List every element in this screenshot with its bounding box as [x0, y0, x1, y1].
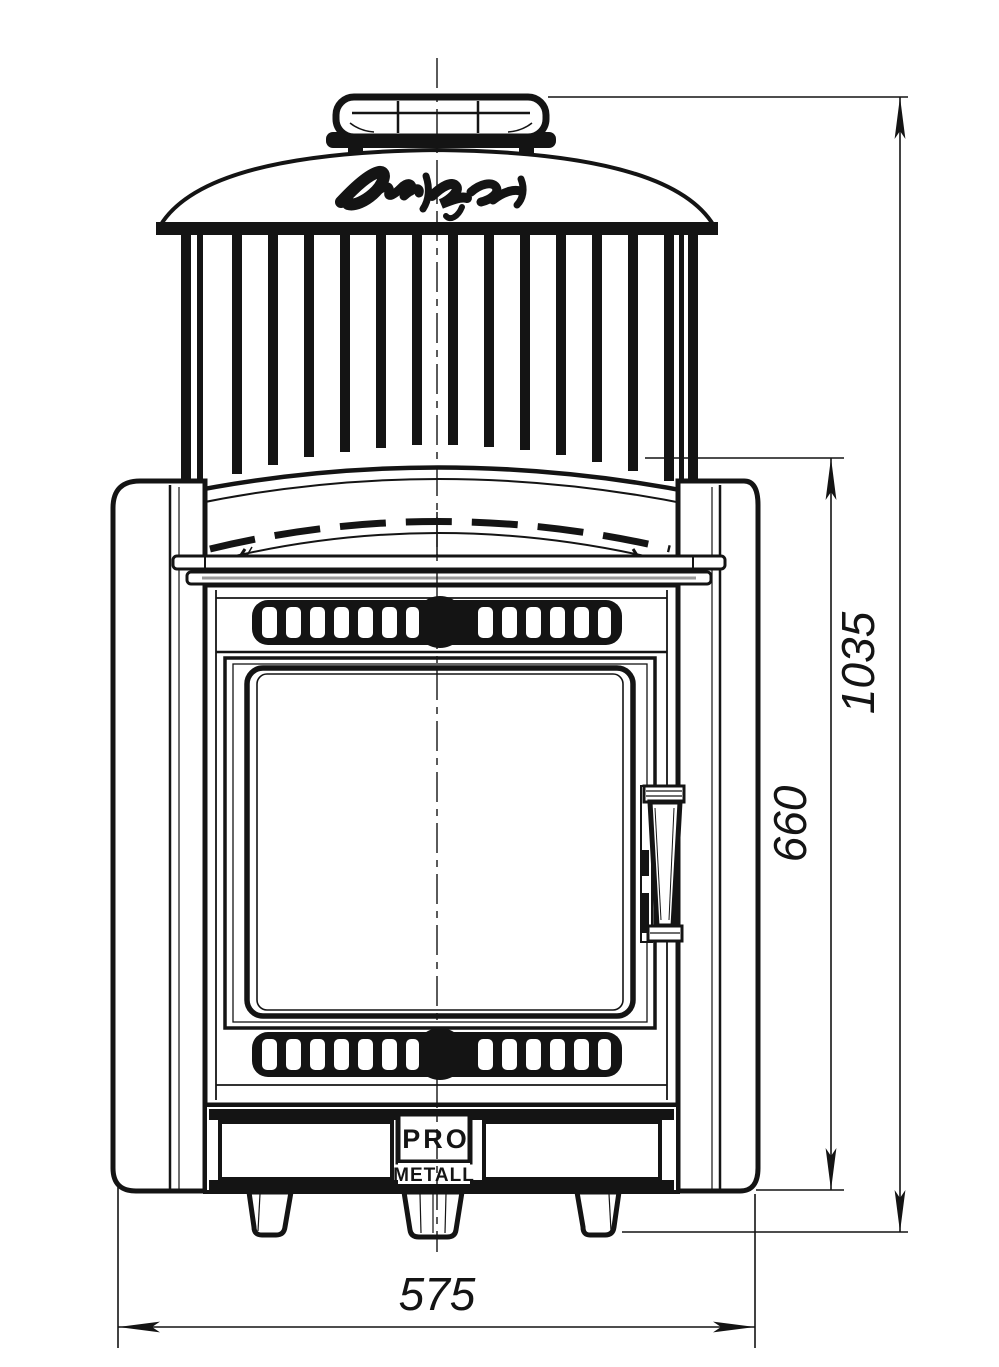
slot	[358, 607, 373, 638]
dim-overall-height-label: 1035	[832, 611, 884, 714]
slat	[592, 230, 602, 462]
grille-knob	[414, 1028, 466, 1080]
slot	[574, 1039, 589, 1070]
side-panel-left	[113, 481, 205, 1191]
leg-center	[404, 1192, 462, 1237]
script-stroke	[404, 189, 419, 196]
slot	[334, 607, 349, 638]
slat	[340, 230, 350, 452]
slat	[688, 230, 698, 490]
side-panel-right	[678, 481, 758, 1191]
stove-front-view-drawing: 1035 660 575	[0, 0, 999, 1367]
slat	[304, 230, 314, 457]
dim-body-height-label: 660	[764, 785, 816, 862]
slot	[406, 1039, 419, 1070]
plinth-panel-right	[484, 1122, 660, 1179]
leg-left	[249, 1192, 291, 1235]
slot	[478, 607, 493, 638]
slat	[679, 230, 684, 487]
slot	[262, 1039, 277, 1070]
leg-outline	[249, 1192, 291, 1235]
slot	[286, 1039, 301, 1070]
slot	[310, 607, 325, 638]
slat	[268, 230, 278, 465]
dim-width-label: 575	[399, 1268, 476, 1320]
slot	[550, 1039, 565, 1070]
handle-grip	[650, 802, 680, 926]
slot	[382, 1039, 397, 1070]
slat	[556, 230, 566, 455]
slat	[664, 230, 674, 481]
slat	[197, 230, 203, 486]
base-plinth: PRO METALL	[205, 1105, 678, 1192]
slot	[574, 607, 589, 638]
slot	[598, 1039, 611, 1070]
maker-badge: PRO METALL	[393, 1114, 475, 1186]
slot	[310, 1039, 325, 1070]
shelf-ledge	[173, 556, 725, 584]
slot	[382, 607, 397, 638]
grille-knob	[414, 596, 466, 648]
panel-outline	[678, 481, 758, 1191]
badge-bottom-label: METALL	[393, 1165, 475, 1186]
panel-outline	[113, 481, 205, 1191]
technical-drawing-page: 1035 660 575	[0, 0, 999, 1367]
slat	[520, 230, 530, 450]
slat	[448, 230, 458, 445]
chimney-collar	[326, 97, 556, 157]
slot	[358, 1039, 373, 1070]
slot	[262, 607, 277, 638]
leg-outline	[577, 1192, 619, 1235]
slot	[526, 607, 541, 638]
plinth-panel-left	[220, 1122, 392, 1179]
slot	[334, 1039, 349, 1070]
slot	[502, 1039, 517, 1070]
slot	[598, 607, 611, 638]
glass-frame	[247, 668, 633, 1016]
slat	[628, 230, 638, 471]
leg-right	[577, 1192, 619, 1235]
fire-door	[205, 585, 684, 1105]
slat	[376, 230, 386, 448]
slot	[406, 607, 419, 638]
door-glass	[225, 658, 655, 1028]
slot	[502, 607, 517, 638]
slot	[550, 607, 565, 638]
slat	[181, 230, 191, 490]
ledge-upper	[173, 556, 725, 569]
slot	[526, 1039, 541, 1070]
slot	[478, 1039, 493, 1070]
slat	[412, 230, 422, 445]
slat	[232, 230, 242, 474]
slat	[484, 230, 494, 447]
badge-top-label: PRO	[402, 1124, 470, 1154]
handle-plate-catch	[640, 850, 649, 876]
slot	[286, 607, 301, 638]
